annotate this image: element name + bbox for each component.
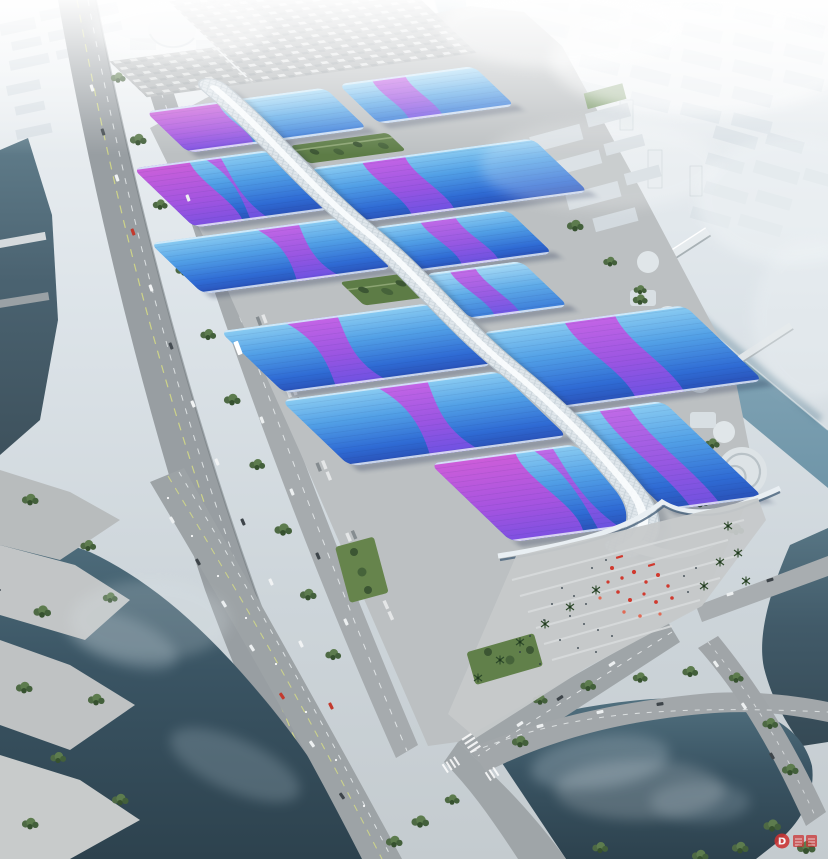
rendering-stage: D [0,0,828,859]
aerial-rendering: D [0,0,828,859]
watermark: D [775,834,818,849]
watermark-logo-letter: D [778,837,786,848]
